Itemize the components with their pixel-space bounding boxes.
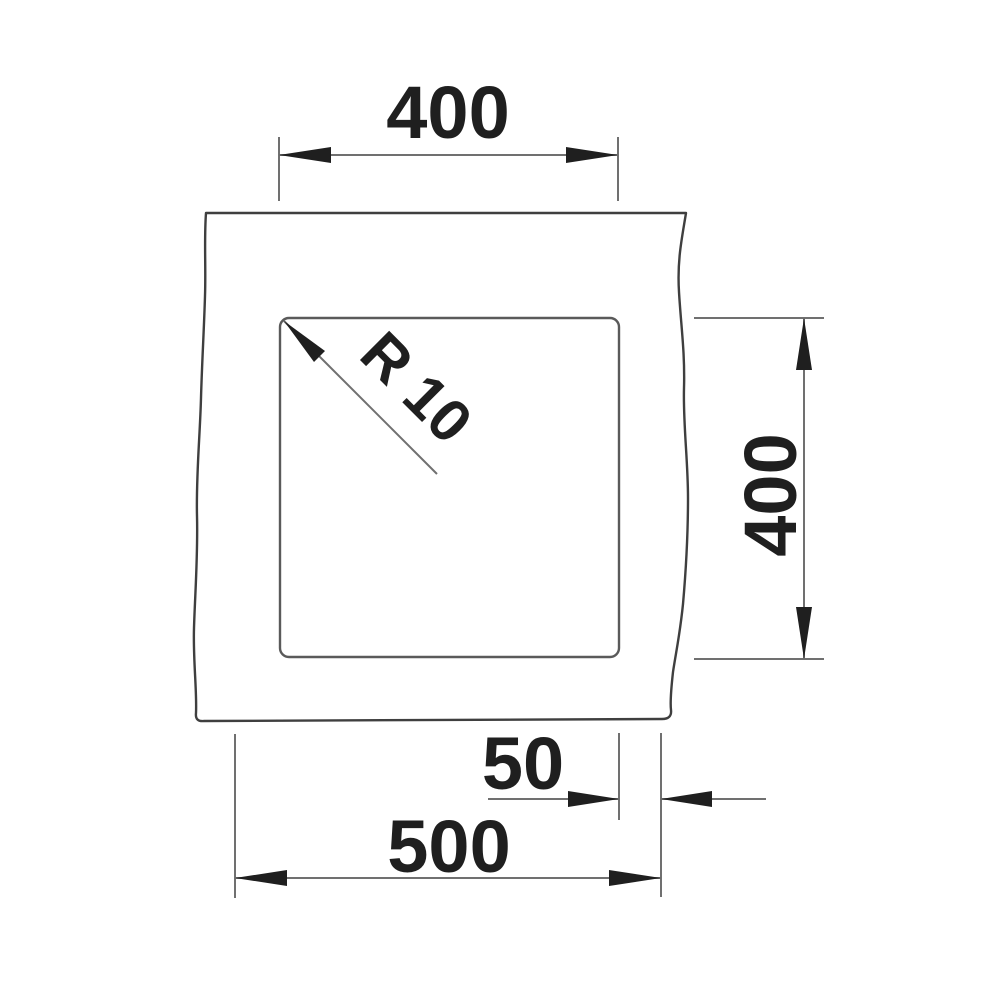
right-edge-offset-label: 50 xyxy=(482,722,564,805)
offset-arrow-left-pointing xyxy=(661,791,712,807)
overall-width-label: 500 xyxy=(387,805,510,888)
right-height-label: 400 xyxy=(729,433,812,556)
drawing-canvas: 400 400 R 10 50 500 xyxy=(0,0,992,992)
overall-width-arrow-left xyxy=(235,870,287,886)
top-width-arrow-right xyxy=(566,147,618,163)
top-width-arrow-left xyxy=(279,147,331,163)
overall-width-arrow-right xyxy=(609,870,661,886)
right-height-arrow-down xyxy=(796,607,812,659)
right-height-arrow-up xyxy=(796,318,812,370)
offset-arrow-right-pointing xyxy=(568,791,619,807)
sink-dimension-drawing: 400 400 R 10 50 500 xyxy=(0,0,992,992)
top-width-label: 400 xyxy=(386,71,509,154)
